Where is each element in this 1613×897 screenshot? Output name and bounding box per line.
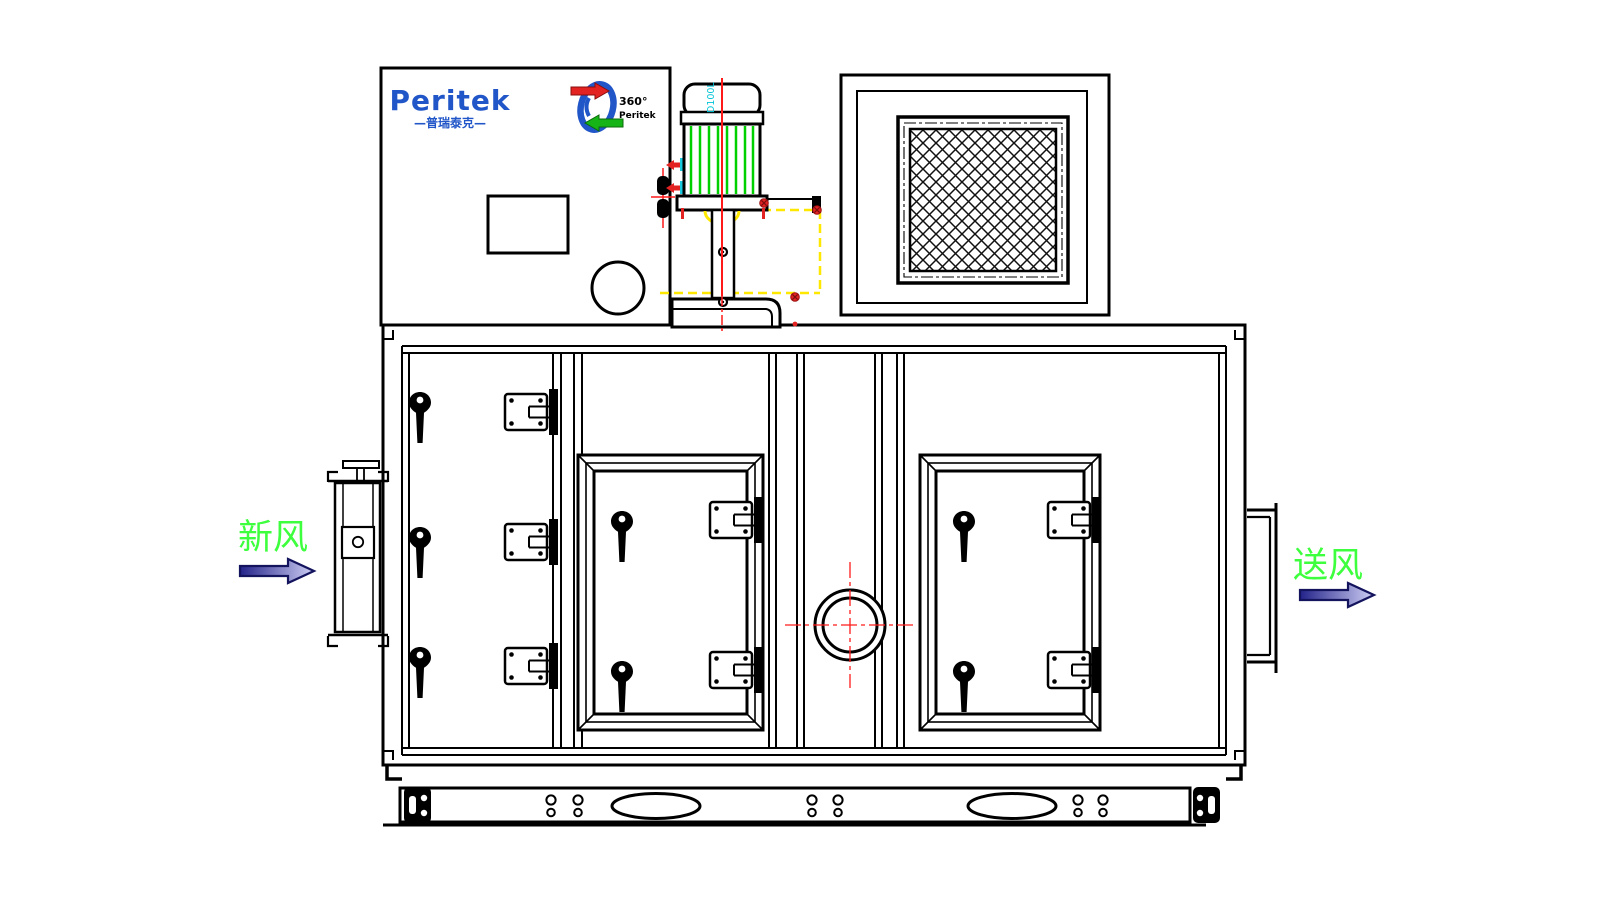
- filter-box: [841, 75, 1109, 315]
- door-latch: [1048, 647, 1101, 693]
- damper-t-handle: [343, 461, 379, 468]
- door-latch: [505, 519, 558, 565]
- door-latch: [505, 389, 558, 435]
- inspection-door-right: [920, 455, 1101, 730]
- motor-assembly: D100L: [660, 78, 821, 334]
- outlet-flange: [1247, 503, 1276, 673]
- brand-logo-text: Peritek: [390, 84, 511, 117]
- red-bolt-icon: [760, 199, 769, 208]
- electrical-panel: [488, 196, 568, 253]
- lifting-slot: [612, 794, 700, 819]
- door-latch: [1048, 497, 1101, 543]
- brand-logo-subtext: —普瑞泰克—: [414, 115, 486, 130]
- supply-air-annotation: 送风: [1293, 546, 1374, 607]
- control-box: Peritek —普瑞泰克— 360° Peritek: [381, 68, 685, 325]
- inspection-door-middle: [578, 455, 763, 730]
- fresh-air-label: 新风: [238, 518, 308, 558]
- mesh-grille: [910, 129, 1056, 271]
- door-latch: [710, 497, 763, 543]
- rotor-mark-line2: Peritek: [619, 111, 657, 121]
- base-frame: [383, 765, 1241, 825]
- supply-air-arrow-icon: [1300, 583, 1374, 607]
- inlet-flange: [328, 461, 388, 646]
- control-box-port: [592, 262, 644, 314]
- red-bolt-icon: [791, 293, 800, 302]
- door-latch: [505, 643, 558, 689]
- fresh-air-annotation: 新风: [238, 518, 314, 583]
- anchor-bracket-right: [1193, 787, 1220, 823]
- drawing-sheet: Peritek —普瑞泰克— 360° Peritek: [0, 0, 1613, 897]
- supply-air-label: 送风: [1293, 546, 1363, 586]
- motor-frame-label: D100L: [706, 82, 717, 113]
- red-bolt-icon: [813, 206, 822, 215]
- anchor-bracket-left: [404, 787, 431, 823]
- fresh-air-arrow-icon: [240, 559, 314, 583]
- rotor-mark-line1: 360°: [619, 95, 647, 108]
- lifting-slot: [968, 794, 1056, 819]
- plate-bolt: [719, 298, 727, 306]
- damper-outline: [660, 210, 820, 293]
- door-latch: [710, 647, 763, 693]
